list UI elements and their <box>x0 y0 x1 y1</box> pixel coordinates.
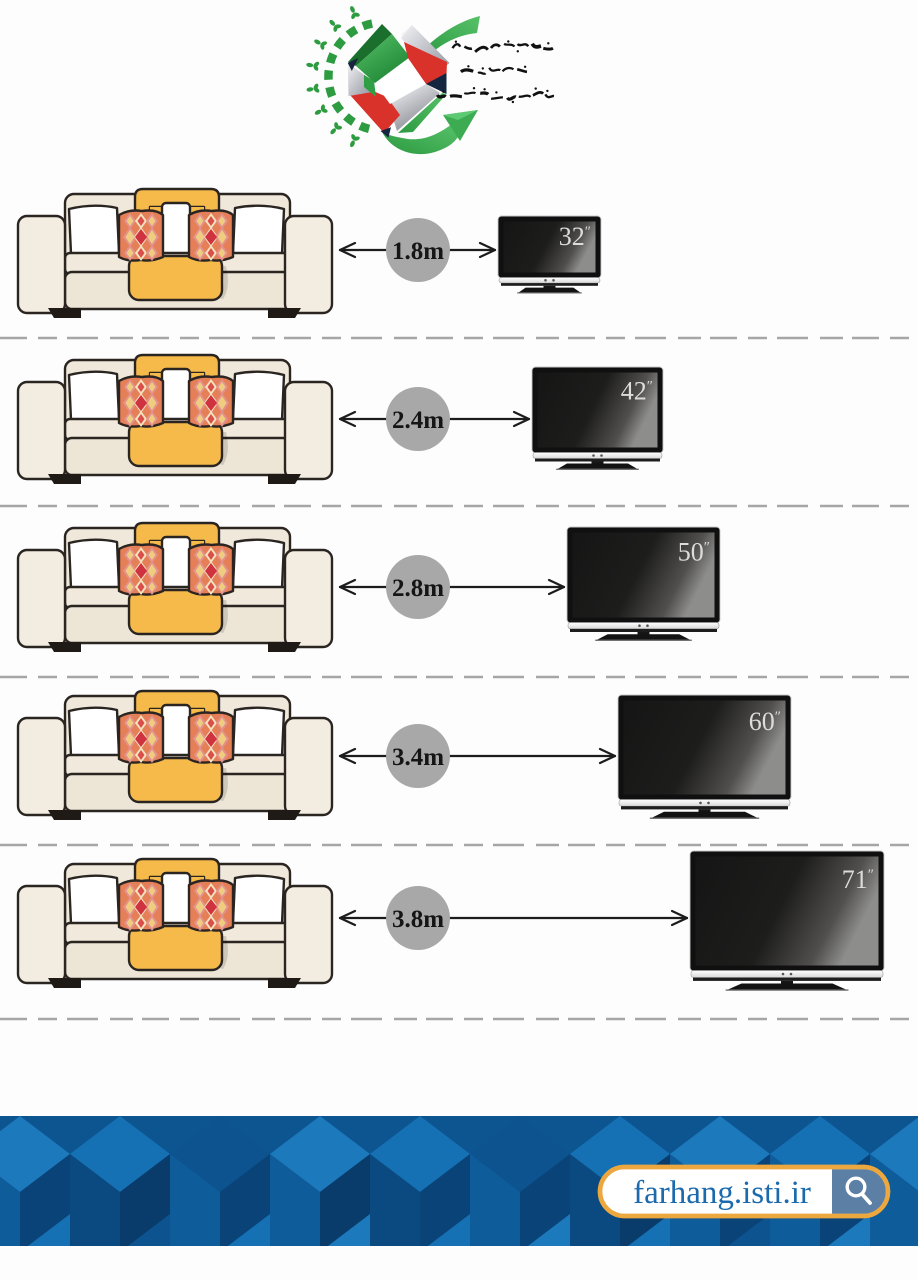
svg-text:2.8m: 2.8m <box>392 575 444 602</box>
svg-text:1.8m: 1.8m <box>392 238 444 265</box>
svg-text:3.4m: 3.4m <box>392 744 444 771</box>
svg-text:3.8m: 3.8m <box>392 906 444 933</box>
svg-text:farhang.isti.ir: farhang.isti.ir <box>633 1175 811 1211</box>
svg-text:2.4m: 2.4m <box>392 407 444 434</box>
